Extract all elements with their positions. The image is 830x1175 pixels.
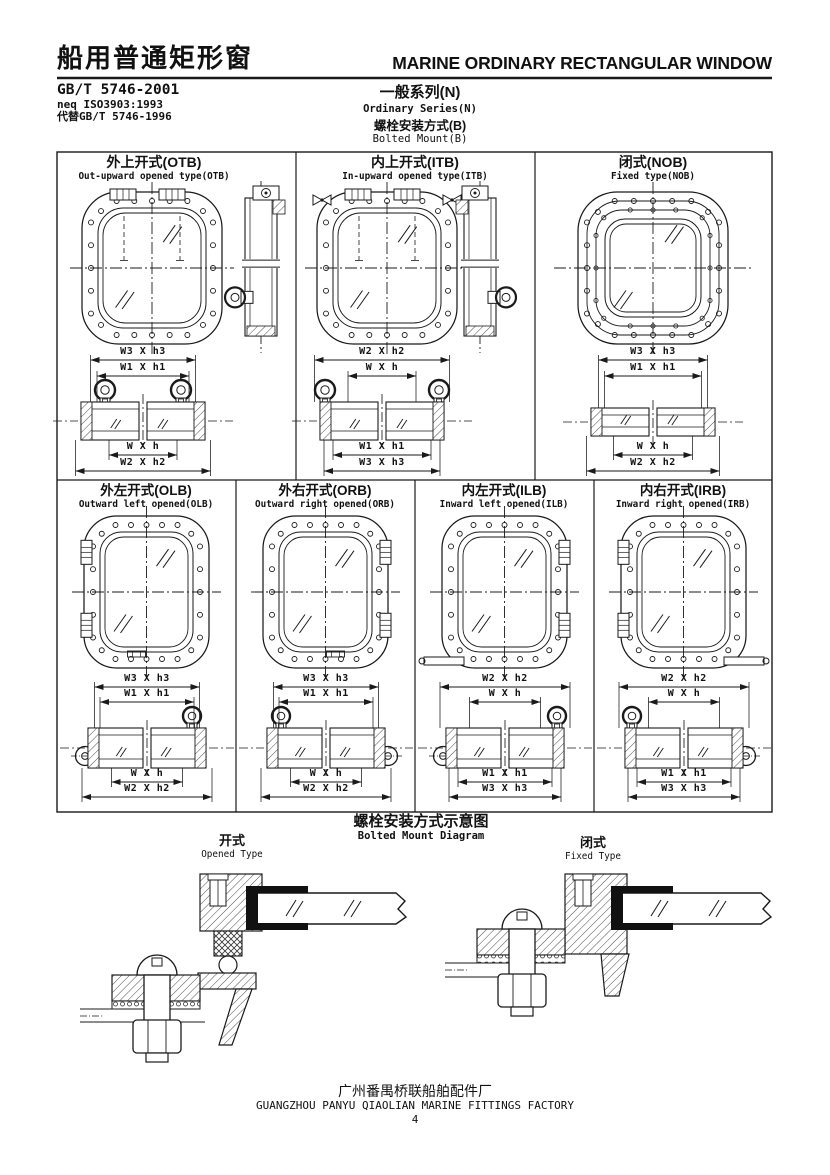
panel-NOB-dim-label-0: W3 X h3 <box>630 347 676 357</box>
catalog-page: 船用普通矩形窗 MARINE ORDINARY RECTANGULAR WIND… <box>0 0 830 1175</box>
panel-ITB-title-en: In-upward opened type(ITB) <box>342 172 488 182</box>
fixed-type-label-en: Fixed Type <box>565 852 621 862</box>
panel-OLB-dim-label-0: W3 X h3 <box>124 674 170 684</box>
series-label-cn: 一般系列(N) <box>380 85 461 102</box>
panel-ITB-dim-label-3: W3 X h3 <box>359 458 405 468</box>
panel-ILB-dim-label-2: W1 X h1 <box>482 769 528 779</box>
panel-OTB-dim-label-0: W3 X h3 <box>120 347 166 357</box>
panel-IRB-dim-label-0: W2 X h2 <box>661 674 707 684</box>
panel-OTB-title-cn: 外上开式(OTB) <box>107 155 202 171</box>
panel-IRB-dim-label-2: W1 X h1 <box>661 769 707 779</box>
panel-ILB-dim-label-0: W2 X h2 <box>482 674 528 684</box>
panel-ILB-dim-label-3: W3 X h3 <box>482 784 528 794</box>
panel-OLB-title-cn: 外左开式(OLB) <box>100 483 192 498</box>
panel-NOB-dim-label-2: W X h <box>637 442 670 452</box>
page-title-en: MARINE ORDINARY RECTANGULAR WINDOW <box>392 54 772 74</box>
panel-ITB-dim-label-0: W2 X h2 <box>359 347 405 357</box>
panel-OLB-title-en: Outward left opened(OLB) <box>79 500 213 510</box>
panel-ITB-dim-label-2: W1 X h1 <box>359 442 405 452</box>
panel-ORB-title-en: Outward right opened(ORB) <box>255 500 395 510</box>
panel-ITB-dim-label-1: W X h <box>366 363 399 373</box>
opened-type-label-cn: 开式 <box>219 834 245 849</box>
panel-ILB-title-en: Inward left opened(ILB) <box>440 500 569 510</box>
panel-OTB-dim-label-2: W X h <box>127 442 160 452</box>
panel-ORB-dim-label-0: W3 X h3 <box>303 674 349 684</box>
panel-ILB-title-cn: 内左开式(ILB) <box>462 483 547 498</box>
panel-NOB-title-en: Fixed type(NOB) <box>611 172 695 182</box>
page-title-cn: 船用普通矩形窗 <box>57 44 253 73</box>
opened-type-label-en: Opened Type <box>201 850 263 860</box>
mount-type-en: Bolted Mount(B) <box>373 134 468 146</box>
panel-IRB-dim-label-3: W3 X h3 <box>661 784 707 794</box>
standard-replaces: 代替GB/T 5746-1996 <box>57 111 172 123</box>
page-number: 4 <box>412 1114 419 1126</box>
series-label-en: Ordinary Series(N) <box>363 104 477 116</box>
mount-type-cn: 螺栓安装方式(B) <box>374 119 466 133</box>
panel-ORB-title-cn: 外右开式(ORB) <box>279 483 372 498</box>
panel-IRB-dim-label-1: W X h <box>668 689 701 699</box>
panel-ITB-title-cn: 内上开式(ITB) <box>371 155 459 171</box>
mount-diagram-title-cn: 螺栓安装方式示意图 <box>353 814 488 831</box>
panel-OTB-dim-label-3: W2 X h2 <box>120 458 166 468</box>
panel-NOB-dim-label-1: W1 X h1 <box>630 363 676 373</box>
panel-ORB-dim-label-2: W X h <box>310 769 343 779</box>
panel-OLB-dim-label-1: W1 X h1 <box>124 689 170 699</box>
panel-OTB-dim-label-1: W1 X h1 <box>120 363 166 373</box>
panel-ORB-dim-label-3: W2 X h2 <box>303 784 349 794</box>
fixed-type-label-cn: 闭式 <box>580 836 606 851</box>
panel-IRB-title-en: Inward right opened(IRB) <box>616 500 750 510</box>
factory-name-en: GUANGZHOU PANYU QIAOLIAN MARINE FITTINGS… <box>256 1100 574 1112</box>
factory-name-cn: 广州番禺桥联船舶配件厂 <box>338 1084 492 1100</box>
mount-diagram-title-en: Bolted Mount Diagram <box>358 831 484 843</box>
panel-IRB-title-cn: 内右开式(IRB) <box>640 483 726 498</box>
panel-ORB-dim-label-1: W1 X h1 <box>303 689 349 699</box>
panel-OLB-dim-label-2: W X h <box>131 769 164 779</box>
panel-OTB-title-en: Out-upward opened type(OTB) <box>78 172 229 182</box>
panel-OLB-dim-label-3: W2 X h2 <box>124 784 170 794</box>
standard-number: GB/T 5746-2001 <box>57 82 179 98</box>
panel-ILB-dim-label-1: W X h <box>489 689 522 699</box>
panel-NOB-dim-label-3: W2 X h2 <box>630 458 676 468</box>
panel-NOB-title-cn: 闭式(NOB) <box>619 155 687 171</box>
